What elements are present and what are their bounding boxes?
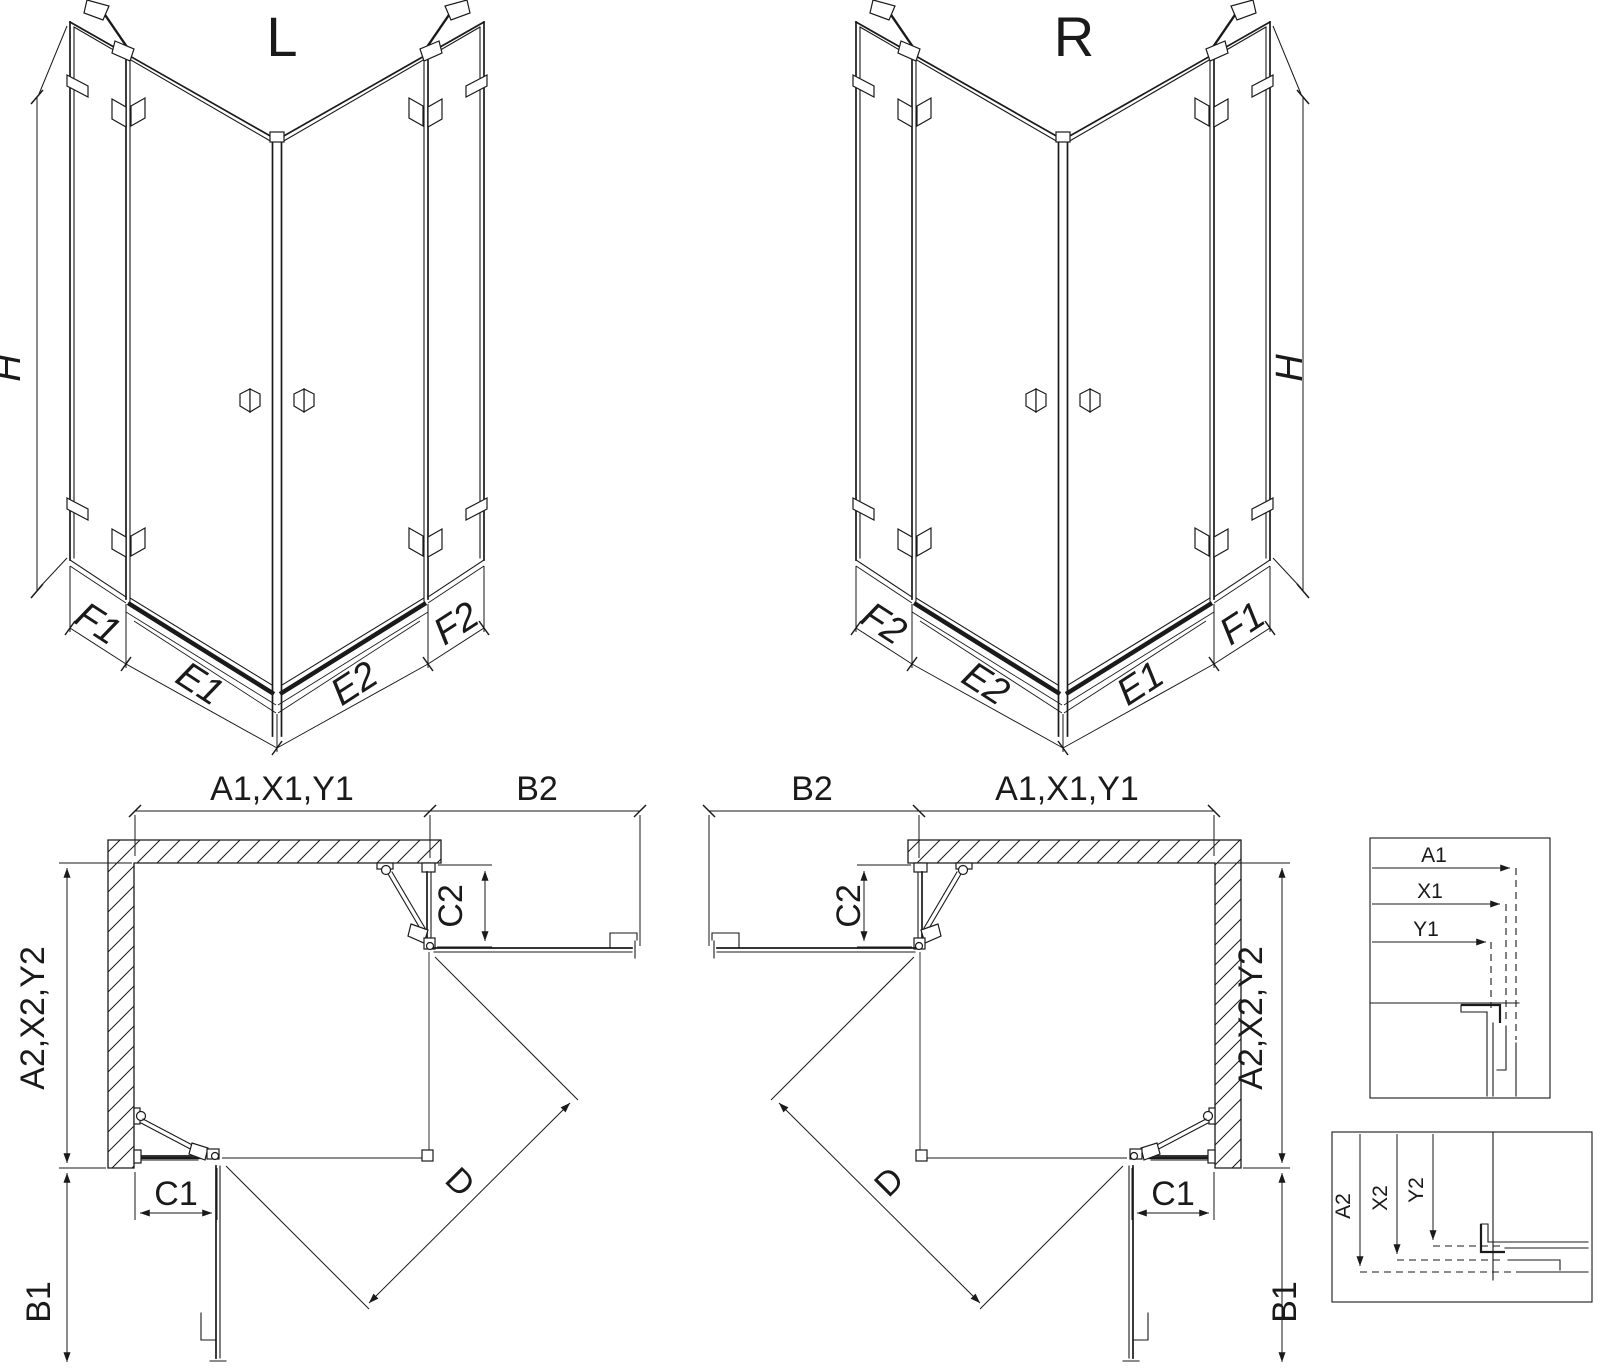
dim-label-h-left: H [0, 354, 29, 382]
detail-dim-y2: Y2 [1405, 1177, 1428, 1203]
detail-box-depth-dims: A2 X2 Y2 [1332, 1132, 1592, 1302]
dim-label-f1-left: F1 [67, 594, 127, 653]
drawing-canvas: L H F1 E1 E2 F2 R H F2 E2 E1 F1 A1,X1,Y1… [0, 0, 1600, 1371]
dim-label-h-right: H [1269, 354, 1311, 382]
shower-enclosure-technical-drawing: L H F1 E1 E2 F2 R H F2 E2 E1 F1 A1,X1,Y1… [0, 0, 1600, 1371]
plan-view-right: A1,X1,Y1 B2 A2,X2,Y2 B1 C2 C1 D [703, 770, 1304, 1362]
detail-dim-y1: Y1 [1413, 918, 1439, 941]
detail-dim-a1: A1 [1421, 844, 1447, 867]
dim-label-a1x1y1-planR: A1,X1,Y1 [995, 770, 1139, 808]
dim-label-b1-planR: B1 [1266, 1281, 1304, 1323]
dim-label-a2x2y2-planL: A2,X2,Y2 [14, 946, 52, 1090]
detail-dim-a2: A2 [1332, 1193, 1355, 1219]
wall-section-right-plan [908, 840, 1241, 1168]
dim-label-c1-planR: C1 [1151, 1175, 1194, 1213]
dim-label-b1-planL: B1 [20, 1281, 58, 1323]
dim-label-c1-planL: C1 [154, 1175, 197, 1213]
dim-label-b2-planL: B2 [516, 770, 558, 808]
iso-right-title: R [1054, 5, 1094, 68]
dim-label-b2-planR: B2 [791, 770, 833, 808]
iso-left-title: L [266, 5, 297, 68]
dim-label-f1-right: F1 [1212, 594, 1272, 653]
dim-label-f2-right: F2 [853, 594, 913, 653]
detail-dim-x1: X1 [1417, 880, 1443, 903]
detail-dim-x2: X2 [1369, 1185, 1392, 1211]
detail-box-width-frame [1370, 838, 1550, 1098]
iso-view-right: R H F2 E2 E1 F1 [851, 0, 1311, 755]
dim-label-f2-left: F2 [426, 594, 486, 653]
wall-section-left-plan [108, 840, 441, 1168]
plan-view-left: A1,X1,Y1 B2 A2,X2,Y2 B1 C2 C1 D [14, 770, 646, 1362]
dim-label-a2x2y2-planR: A2,X2,Y2 [1232, 946, 1270, 1090]
detail-box-depth-frame [1332, 1132, 1592, 1302]
dim-label-a1x1y1-planL: A1,X1,Y1 [210, 770, 354, 808]
iso-view-left: L H F1 E1 E2 F2 [0, 0, 489, 755]
dim-label-c2-planR: C2 [830, 884, 868, 927]
dim-label-c2-planL: C2 [432, 884, 470, 927]
plan-enclosure-left [59, 805, 646, 1362]
plan-enclosure-right [703, 805, 1290, 1362]
detail-box-width-dims: A1 X1 Y1 [1370, 838, 1550, 1098]
